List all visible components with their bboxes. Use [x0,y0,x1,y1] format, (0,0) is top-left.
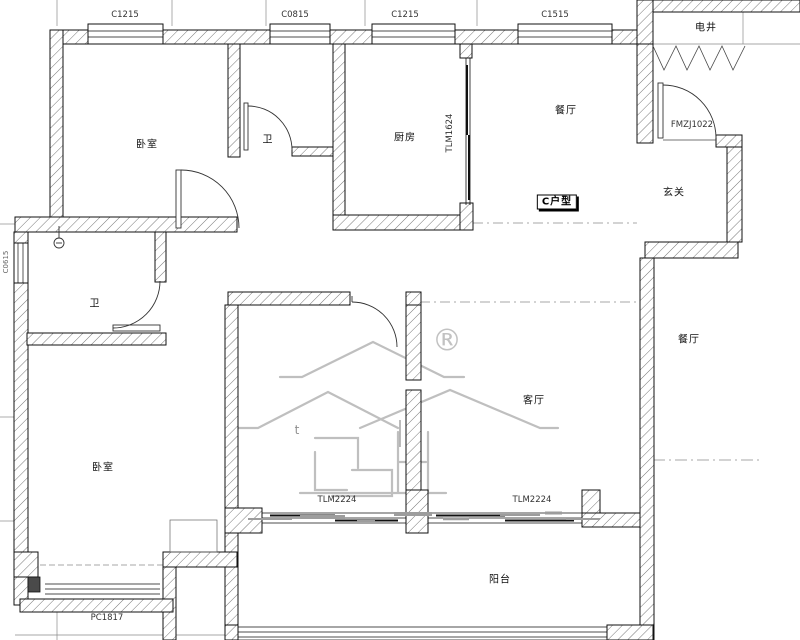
watermark-small-mark: t [295,423,300,437]
room-label-bath-top: 卫 [263,131,274,146]
unit-type-badge: C户型 [537,195,577,210]
door-label-kitchen-sliding: TLM1624 [445,114,455,153]
window-label-c0815: C0815 [281,10,309,20]
bedroom-top-door-leaf [176,170,181,228]
room-label-dining-top: 餐厅 [555,102,577,117]
closet-outline [170,520,217,552]
door-label-balcony-sliding-1: TLM2224 [318,495,357,505]
house-logo-watermark [238,342,558,496]
bath-top-door-leaf [244,103,248,150]
registered-trademark-icon: ® [432,324,462,359]
window-label-left: C0615 [2,251,10,274]
room-label-bedroom-lower: 卧室 [92,459,114,474]
bath-lower-door-leaf [113,325,160,331]
entry-door-arc [663,85,716,138]
window-label-c1215-2: C1215 [391,10,419,20]
grid-lines [0,0,800,640]
room-label-kitchen: 厨房 [394,129,416,144]
window-label-pc1817: PC1817 [91,613,124,623]
room-label-living-room: 客厅 [523,392,545,407]
door-label-balcony-sliding-2: TLM2224 [513,495,552,505]
room-label-foyer: 玄关 [663,184,685,199]
room-label-bath-lower: 卫 [90,295,101,310]
floorplan-drawing [0,0,800,640]
door-label-entry: FMZJ1022 [671,120,713,130]
column-solid [28,577,40,592]
sliding-doors [262,58,582,523]
room-label-balcony: 阳台 [489,571,511,586]
room-label-utility-shaft: 电井 [695,19,717,34]
room-label-dining-right: 餐厅 [678,331,700,346]
walls [14,0,800,640]
window-label-c1215-1: C1215 [111,10,139,20]
window-label-c1515: C1515 [541,10,569,20]
entry-door-leaf [658,83,663,138]
floorplan-canvas: C1215 C0815 C1215 C1515 C0615 PC1817 FMZ… [0,0,800,640]
bath-lower-door-arc [113,281,160,328]
hall-door-arc [352,302,397,347]
room-label-bedroom-top: 卧室 [136,136,158,151]
